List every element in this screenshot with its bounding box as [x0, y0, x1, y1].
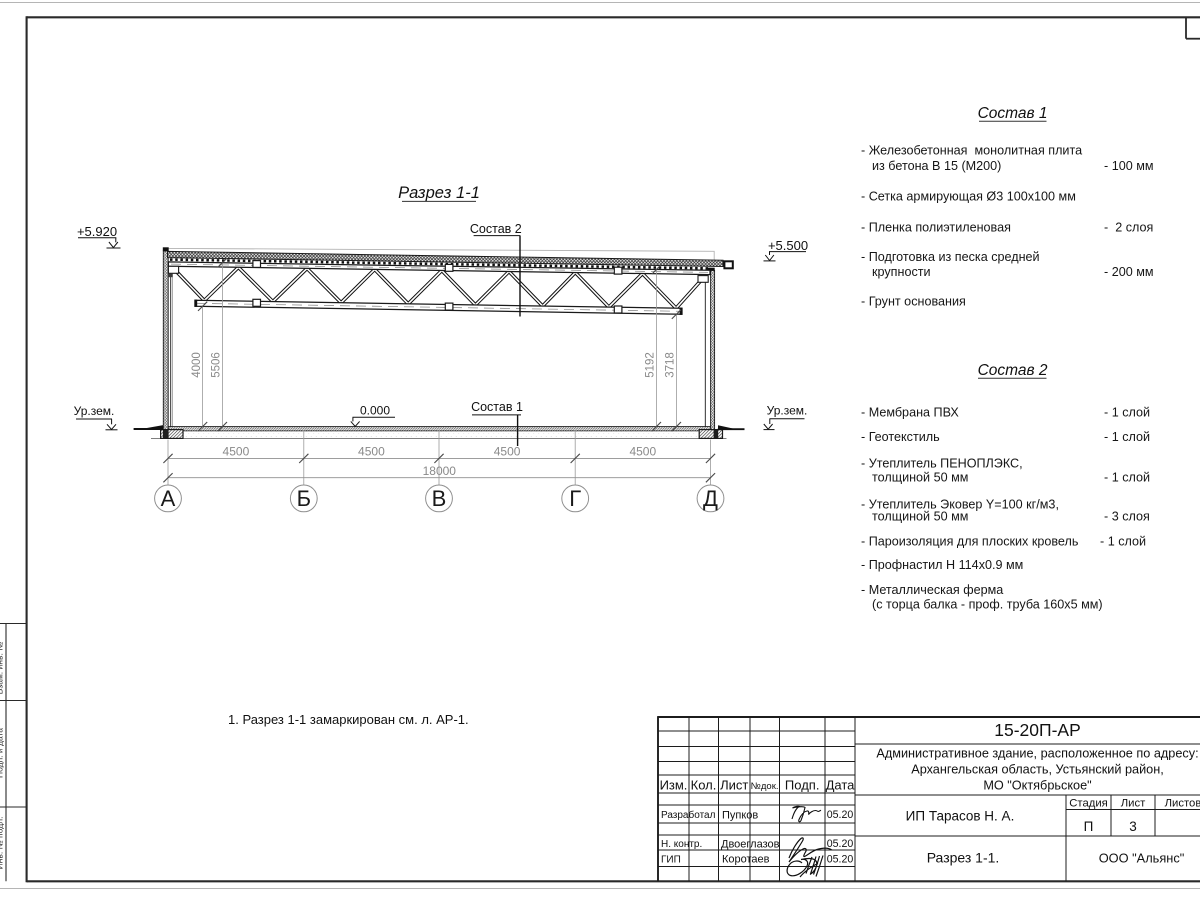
svg-text:А: А: [161, 486, 176, 511]
svg-text:МО "Октябрьское": МО "Октябрьское": [983, 779, 1091, 793]
svg-text:Взам. инв. №: Взам. инв. №: [0, 642, 4, 695]
svg-text:05.20: 05.20: [827, 853, 854, 865]
svg-text:Н. контр.: Н. контр.: [661, 839, 702, 850]
svg-text:05.20: 05.20: [827, 809, 854, 821]
svg-text:- Подготовка из песка средней: - Подготовка из песка средней: [861, 250, 1040, 264]
svg-text:- Мембрана ПВХ: - Мембрана ПВХ: [861, 406, 959, 420]
svg-text:0.000: 0.000: [360, 404, 390, 418]
svg-text:Разработал: Разработал: [661, 809, 716, 821]
svg-text:5192: 5192: [645, 352, 657, 378]
svg-text:из бетона В 15 (М200): из бетона В 15 (М200): [872, 159, 1001, 173]
svg-text:4000: 4000: [191, 352, 203, 378]
svg-text:крупности: крупности: [872, 265, 931, 279]
svg-text:Изм.: Изм.: [660, 778, 688, 793]
svg-text:Г: Г: [569, 486, 581, 511]
svg-text:Пупков: Пупков: [722, 809, 758, 821]
svg-text:- 200 мм: - 200 мм: [1104, 265, 1154, 279]
svg-text:Разрез 1-1: Разрез 1-1: [398, 184, 480, 202]
svg-text:- Утеплитель ПЕНОПЛЭКС,: - Утеплитель ПЕНОПЛЭКС,: [861, 457, 1023, 471]
svg-text:Лист: Лист: [720, 778, 748, 793]
svg-text:- 2 слоя: - 2 слоя: [1104, 221, 1153, 235]
svg-text:Состав 1: Состав 1: [978, 105, 1048, 122]
svg-text:Ур.зем.: Ур.зем.: [767, 404, 808, 418]
svg-text:3: 3: [1129, 819, 1137, 834]
svg-text:ГИП: ГИП: [661, 855, 681, 866]
svg-text:- Металлическая ферма: - Металлическая ферма: [861, 583, 1003, 597]
svg-text:Листов: Листов: [1165, 797, 1200, 809]
svg-text:- 1 слой: - 1 слой: [1104, 470, 1150, 484]
svg-text:18000: 18000: [423, 464, 457, 478]
svg-text:4500: 4500: [494, 445, 521, 459]
svg-text:- 3 слоя: - 3 слоя: [1104, 510, 1150, 524]
svg-text:Двоеглазов: Двоеглазов: [721, 838, 780, 850]
svg-text:Ур.зем.: Ур.зем.: [74, 404, 115, 418]
svg-text:Кол.: Кол.: [691, 778, 717, 793]
svg-text:05.20: 05.20: [827, 838, 854, 850]
svg-text:Б: Б: [297, 486, 311, 511]
svg-text:4500: 4500: [629, 445, 656, 459]
svg-text:Разрез 1-1.: Разрез 1-1.: [927, 849, 1000, 865]
svg-text:Д: Д: [703, 486, 718, 511]
svg-text:- Геотекстиль: - Геотекстиль: [861, 430, 940, 444]
svg-text:15-20П-АР: 15-20П-АР: [994, 720, 1081, 740]
svg-text:Подп.: Подп.: [785, 778, 820, 793]
svg-text:Состав 1: Состав 1: [471, 400, 523, 414]
svg-text:4500: 4500: [223, 445, 250, 459]
svg-text:Дата: Дата: [826, 778, 856, 793]
svg-text:+5.920: +5.920: [77, 224, 117, 239]
svg-text:В: В: [432, 486, 447, 511]
svg-text:Инв. № подл.: Инв. № подл.: [0, 817, 4, 870]
svg-text:- 1 слой: - 1 слой: [1104, 406, 1150, 420]
svg-text:Стадия: Стадия: [1069, 797, 1108, 809]
svg-text:ИП Тарасов Н. А.: ИП Тарасов Н. А.: [906, 809, 1015, 824]
svg-text:Состав 2: Состав 2: [978, 362, 1048, 379]
svg-text:- Грунт основания: - Грунт основания: [861, 295, 966, 309]
svg-text:- 1 слой: - 1 слой: [1100, 535, 1146, 549]
svg-text:Лист: Лист: [1121, 797, 1146, 809]
svg-text:П: П: [1084, 819, 1094, 834]
svg-text:Подп. и дата: Подп. и дата: [0, 728, 4, 778]
svg-text:- 1 слой: - 1 слой: [1104, 430, 1150, 444]
svg-text:+5.500: +5.500: [768, 238, 808, 253]
svg-text:Состав 2: Состав 2: [470, 222, 522, 236]
svg-text:- 100 мм: - 100 мм: [1104, 159, 1154, 173]
svg-text:4500: 4500: [358, 445, 385, 459]
svg-text:Коротаев: Коротаев: [722, 854, 770, 866]
svg-text:Архангельская область, Устьянс: Архангельская область, Устьянский район,: [911, 763, 1164, 777]
svg-text:- Железобетонная монолитная п: - Железобетонная монолитная плита: [861, 143, 1082, 157]
svg-text:1. Разрез 1-1 замаркирован см.: 1. Разрез 1-1 замаркирован см. л. АР-1.: [228, 712, 469, 727]
svg-text:5506: 5506: [211, 352, 223, 378]
svg-text:толщиной 50 мм: толщиной 50 мм: [872, 470, 968, 484]
svg-text:- Сетка армирующая Ø3 100х100: - Сетка армирующая Ø3 100х100 мм: [861, 190, 1076, 204]
svg-text:- Пленка полиэтиленовая: - Пленка полиэтиленовая: [861, 221, 1011, 235]
svg-text:- Профнастил Н 114х0.9 мм: - Профнастил Н 114х0.9 мм: [861, 558, 1023, 572]
svg-text:ООО "Альянс": ООО "Альянс": [1099, 850, 1185, 865]
svg-text:№док.: №док.: [751, 781, 779, 792]
svg-text:3718: 3718: [665, 352, 677, 378]
svg-text:Административное здание, распо: Административное здание, расположенное п…: [876, 747, 1198, 761]
svg-text:- Пароизоляция для плоских кро: - Пароизоляция для плоских кровель: [861, 535, 1079, 549]
svg-text:(с торца балка - проф. труба 1: (с торца балка - проф. труба 160х5 мм): [872, 598, 1103, 612]
svg-text:толщиной 50 мм: толщиной 50 мм: [872, 510, 968, 524]
